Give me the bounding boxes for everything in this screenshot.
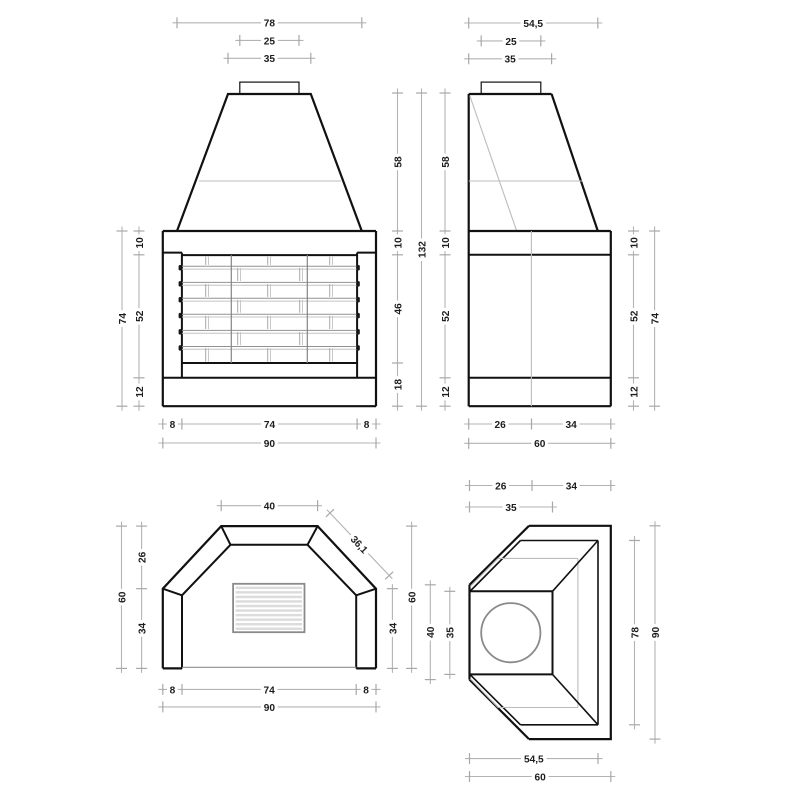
svg-text:40: 40 (264, 502, 276, 513)
svg-text:34: 34 (565, 420, 577, 431)
svg-text:8: 8 (170, 685, 176, 696)
svg-text:58: 58 (393, 156, 404, 168)
svg-text:10: 10 (135, 237, 146, 249)
svg-text:34: 34 (388, 623, 399, 635)
svg-text:12: 12 (441, 386, 452, 398)
svg-text:10: 10 (393, 237, 404, 249)
svg-text:54,5: 54,5 (523, 19, 543, 30)
svg-text:60: 60 (117, 591, 128, 603)
svg-text:26: 26 (494, 420, 506, 431)
svg-text:26: 26 (495, 481, 507, 492)
svg-text:54,5: 54,5 (524, 755, 544, 766)
svg-text:52: 52 (629, 310, 640, 322)
svg-text:58: 58 (441, 156, 452, 168)
svg-text:8: 8 (363, 685, 369, 696)
svg-text:78: 78 (264, 19, 276, 30)
svg-text:10: 10 (441, 237, 452, 249)
svg-text:26: 26 (138, 551, 149, 563)
svg-text:132: 132 (417, 241, 428, 258)
svg-text:35: 35 (504, 55, 516, 66)
svg-text:60: 60 (408, 591, 419, 603)
svg-text:35: 35 (264, 54, 276, 65)
svg-text:25: 25 (264, 36, 276, 47)
svg-text:78: 78 (630, 627, 641, 639)
svg-text:90: 90 (651, 627, 662, 639)
svg-text:8: 8 (170, 420, 176, 431)
svg-text:35: 35 (446, 627, 457, 639)
svg-text:74: 74 (264, 420, 276, 431)
svg-text:8: 8 (364, 420, 370, 431)
svg-text:52: 52 (441, 310, 452, 322)
svg-text:90: 90 (264, 439, 276, 450)
svg-text:10: 10 (629, 237, 640, 249)
svg-text:12: 12 (629, 386, 640, 398)
svg-text:34: 34 (566, 481, 578, 492)
svg-text:60: 60 (534, 772, 546, 783)
svg-text:60: 60 (534, 439, 546, 450)
svg-text:46: 46 (393, 303, 404, 315)
svg-text:18: 18 (393, 379, 404, 391)
svg-text:74: 74 (118, 313, 129, 325)
svg-text:25: 25 (505, 37, 517, 48)
svg-text:34: 34 (138, 623, 149, 635)
svg-text:35: 35 (505, 503, 517, 514)
svg-text:74: 74 (263, 685, 275, 696)
svg-text:12: 12 (135, 386, 146, 398)
svg-text:52: 52 (135, 310, 146, 322)
svg-text:40: 40 (426, 626, 437, 638)
svg-text:90: 90 (264, 703, 276, 714)
svg-text:74: 74 (651, 313, 662, 325)
